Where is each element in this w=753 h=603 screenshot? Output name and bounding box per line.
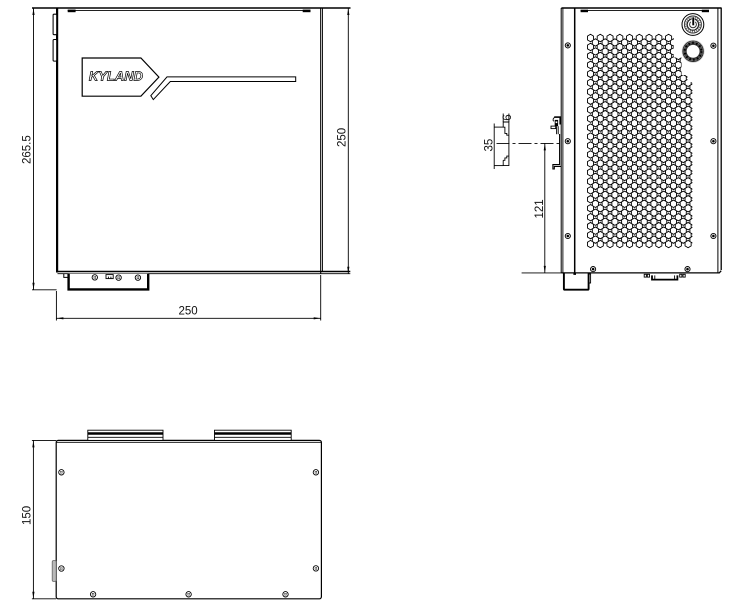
- svg-text:121: 121: [534, 199, 546, 218]
- svg-text:6: 6: [502, 114, 514, 120]
- svg-text:150: 150: [21, 506, 33, 525]
- svg-text:250: 250: [179, 306, 198, 318]
- svg-text:KYLAND: KYLAND: [89, 69, 144, 84]
- svg-text:250: 250: [336, 128, 348, 147]
- svg-text:265.5: 265.5: [22, 135, 34, 164]
- svg-text:35: 35: [483, 139, 495, 152]
